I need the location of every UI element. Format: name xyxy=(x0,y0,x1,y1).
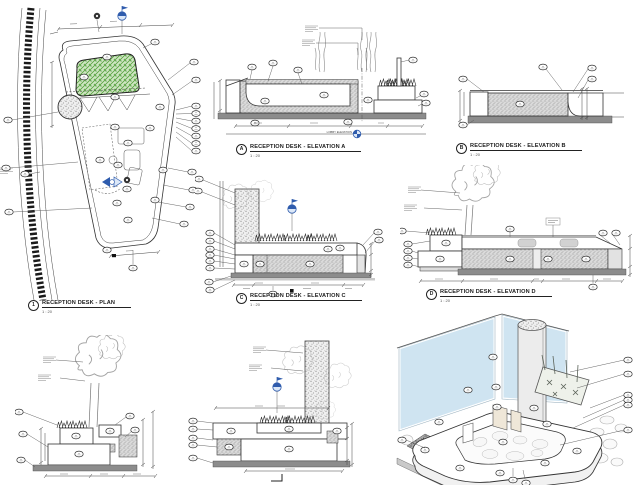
plant-note xyxy=(38,375,51,380)
drawing-number-bubble: C xyxy=(236,293,247,304)
elev-b-title-block: B RECEPTION DESK - ELEVATION B 1 : 20 xyxy=(456,143,582,157)
plan-drawing xyxy=(0,0,210,320)
section-flag-icon xyxy=(273,377,283,391)
counter-plants xyxy=(255,234,337,241)
elev-a-title-block: A RECEPTION DESK - ELEVATION A 1 : 20 xyxy=(236,144,361,158)
drawing-scale: 1 : 20 xyxy=(42,309,131,314)
desk-detail-1 xyxy=(33,421,137,471)
desk-detail-2 xyxy=(213,416,350,467)
column-plan xyxy=(58,95,82,119)
plant-note xyxy=(43,357,56,362)
drawing-scale: 1 : 20 xyxy=(250,153,361,158)
level-marker-icon xyxy=(353,130,361,138)
north-corner-mark xyxy=(271,474,282,481)
desk-elev-c xyxy=(215,243,375,281)
plant-note xyxy=(408,187,421,192)
road-curve xyxy=(18,8,58,300)
plan-top-markers xyxy=(94,6,128,34)
elevation-c-drawing xyxy=(195,165,400,310)
drawing-number-bubble: B xyxy=(456,143,467,154)
drawing-scale: 1 : 20 xyxy=(440,298,552,303)
counter-flag-note xyxy=(546,218,560,237)
section-cut-arrow xyxy=(102,177,122,187)
tree-sketch xyxy=(452,165,500,235)
desk-elev-d xyxy=(418,228,626,275)
elev-c-title-block: C RECEPTION DESK - ELEVATION C 1 : 20 xyxy=(236,293,362,307)
drawing-number-bubble: A xyxy=(236,144,247,155)
elev-d-title-block: D RECEPTION DESK - ELEVATION D 1 : 20 xyxy=(426,289,552,303)
plant-note xyxy=(404,205,417,210)
desk-elev-b xyxy=(468,91,624,124)
drawing-sheet: LOBBY ELEVATION xyxy=(0,0,640,485)
drawing-title: RECEPTION DESK - PLAN xyxy=(42,300,131,308)
drawing-title: RECEPTION DESK - ELEVATION D xyxy=(440,289,552,297)
drawing-scale: 1 : 20 xyxy=(470,152,582,157)
section-flag-icon xyxy=(288,199,298,213)
drawing-title: RECEPTION DESK - ELEVATION A xyxy=(250,144,361,152)
section-flag-icon xyxy=(118,6,128,20)
drawing-number-bubble: D xyxy=(426,289,437,300)
plan-title-block: 1 RECEPTION DESK - PLAN 1 : 20 xyxy=(28,300,131,314)
drawing-scale: 1 : 20 xyxy=(250,302,362,307)
drawing-number-bubble: 1 xyxy=(28,300,39,311)
elevation-a-drawing: LOBBY ELEVATION xyxy=(210,10,440,160)
dark-keynote-center xyxy=(126,179,128,181)
drawing-title: RECEPTION DESK - ELEVATION C xyxy=(250,293,362,301)
tree-sketch xyxy=(75,335,125,427)
plant-note xyxy=(249,365,262,370)
wall-edge xyxy=(220,181,223,267)
detail-section-1 xyxy=(15,335,180,485)
drawing-title: RECEPTION DESK - ELEVATION B xyxy=(470,143,582,151)
axon-3d-view xyxy=(395,310,640,485)
stone-column xyxy=(305,341,329,425)
detail-section-2 xyxy=(185,335,380,485)
plants-elev-a xyxy=(302,26,377,72)
section-marker-square xyxy=(112,254,116,257)
plant-note xyxy=(253,347,266,352)
level-label: LOBBY ELEVATION xyxy=(327,130,352,134)
